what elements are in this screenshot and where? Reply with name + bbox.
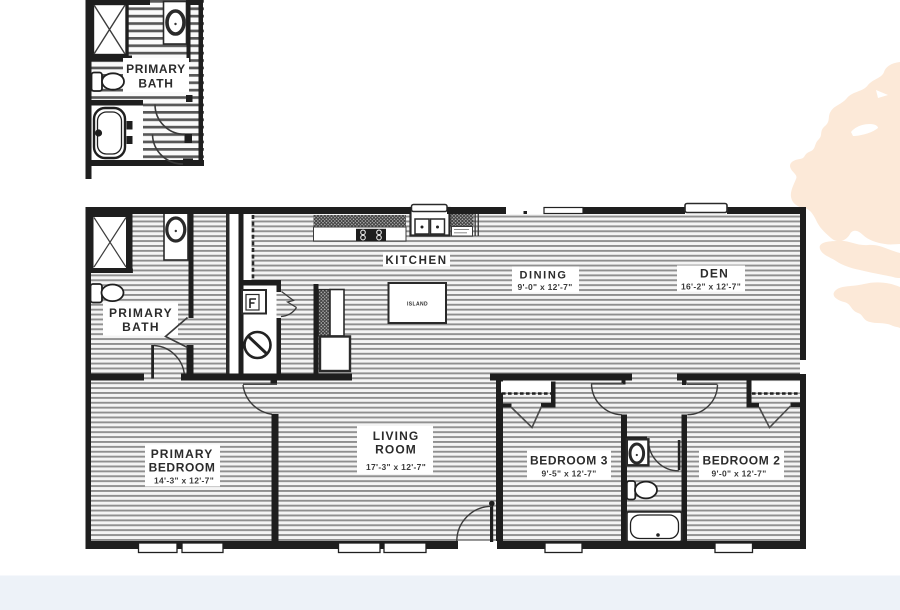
svg-text:BEDROOM 3: BEDROOM 3	[530, 454, 608, 468]
svg-text:ROOM: ROOM	[375, 443, 417, 457]
svg-text:BEDROOM: BEDROOM	[149, 461, 216, 475]
svg-text:BEDROOM 2: BEDROOM 2	[702, 454, 780, 468]
svg-text:PRIMARY: PRIMARY	[109, 306, 173, 320]
svg-text:16'-2" x 12'-7": 16'-2" x 12'-7"	[681, 282, 741, 292]
svg-text:DINING: DINING	[519, 270, 567, 282]
svg-text:BATH: BATH	[122, 320, 160, 334]
svg-text:PRIMARY: PRIMARY	[151, 447, 214, 461]
svg-text:KITCHEN: KITCHEN	[385, 255, 447, 267]
svg-text:ISLAND: ISLAND	[407, 302, 428, 308]
svg-text:9'-0" x 12'-7": 9'-0" x 12'-7"	[517, 282, 572, 292]
svg-text:PRIMARY: PRIMARY	[126, 62, 186, 76]
svg-text:9'-5" x 12'-7": 9'-5" x 12'-7"	[541, 469, 596, 479]
svg-text:BATH: BATH	[138, 77, 173, 91]
svg-text:14'-3" x 12'-7": 14'-3" x 12'-7"	[154, 476, 214, 486]
svg-text:LIVING: LIVING	[373, 429, 420, 443]
svg-text:17'-3" x 12'-7": 17'-3" x 12'-7"	[366, 462, 426, 472]
svg-text:9'-0" x 12'-7": 9'-0" x 12'-7"	[711, 469, 766, 479]
svg-text:DEN: DEN	[700, 267, 729, 281]
